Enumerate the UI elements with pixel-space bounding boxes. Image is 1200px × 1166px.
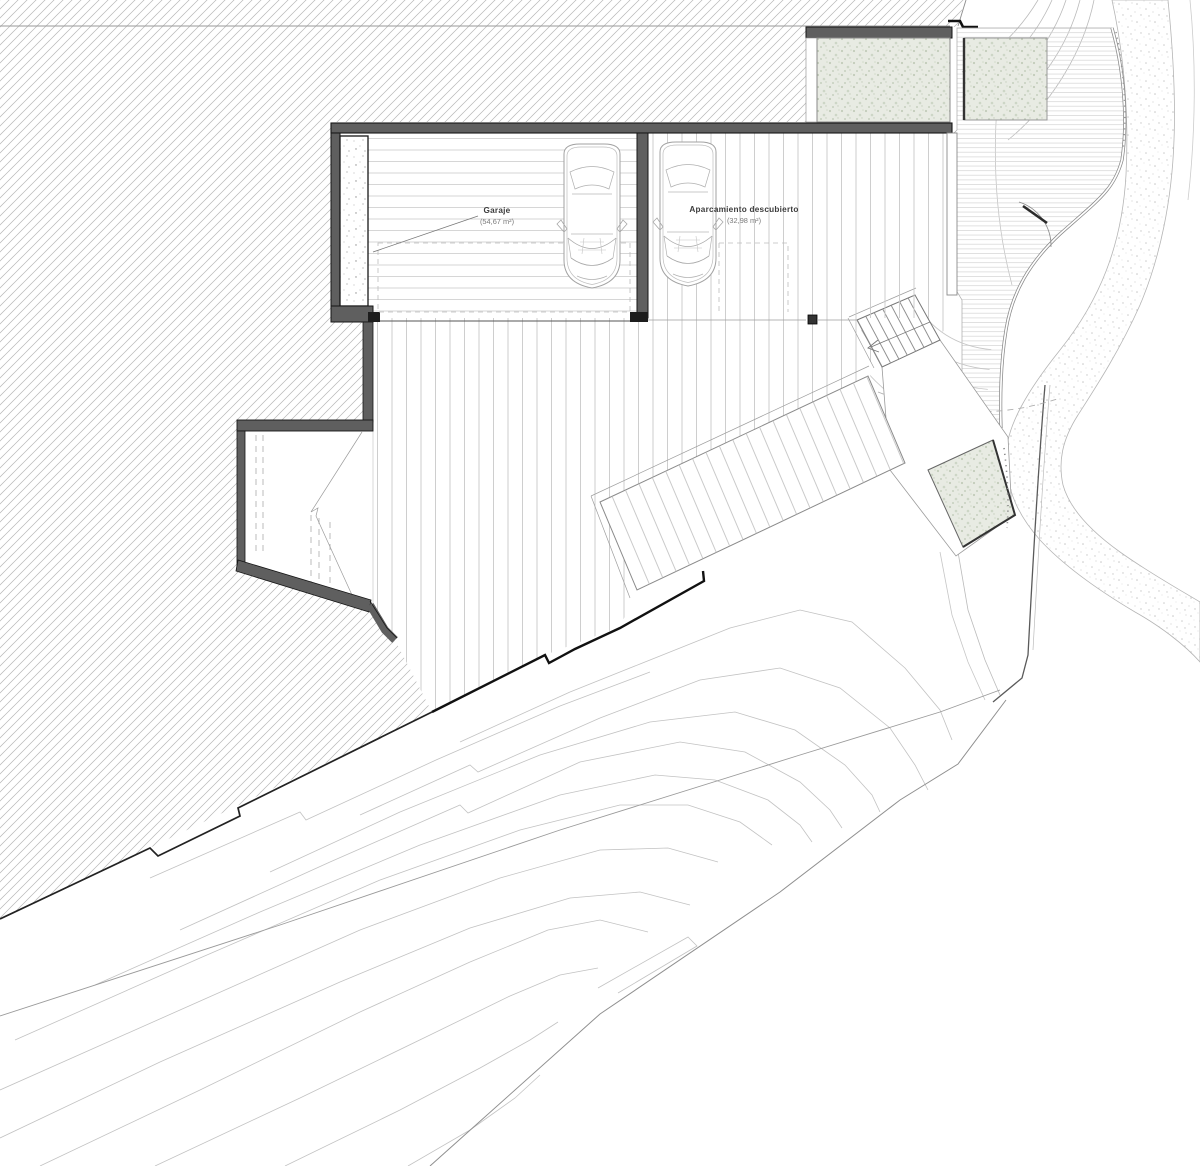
garage-sw-wall <box>331 306 373 322</box>
planter-north-wall <box>806 27 952 38</box>
steel-column <box>808 315 817 324</box>
parking-east-wall <box>947 133 957 295</box>
planter-2 <box>964 38 1047 120</box>
parking-label: Aparcamiento descubierto <box>689 205 798 214</box>
door-post-left <box>368 312 380 322</box>
north-wall <box>331 123 952 133</box>
planter-1 <box>817 38 950 122</box>
north-planters <box>806 27 1047 122</box>
site-plan-page: Garaje (54,67 m²) Aparcamiento descubier… <box>0 0 1200 1166</box>
garage-west-wall <box>331 133 340 318</box>
divider-wall <box>637 133 648 318</box>
parking-car <box>653 142 723 286</box>
garage-label: Garaje <box>484 206 511 215</box>
parking-area-label: (32,98 m²) <box>727 216 761 225</box>
garage-area-label: (54,67 m²) <box>480 217 514 226</box>
planter-west-strip <box>806 38 817 122</box>
west-court-wall <box>363 322 373 422</box>
door-post-right <box>630 312 648 322</box>
garage-car <box>557 144 627 288</box>
concrete-pier <box>340 136 368 306</box>
floor-plan-svg: Garaje (54,67 m²) Aparcamiento descubier… <box>0 0 1200 1166</box>
